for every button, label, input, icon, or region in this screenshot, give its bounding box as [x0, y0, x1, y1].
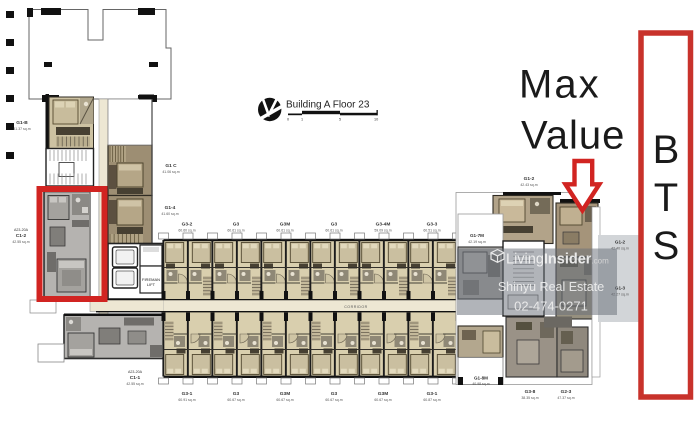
svg-text:G1 C: G1 C	[165, 163, 177, 169]
svg-text:G3M: G3M	[280, 391, 290, 397]
svg-text:41.06 sq.m: 41.06 sq.m	[162, 170, 179, 174]
svg-text:N: N	[267, 113, 270, 118]
svg-text:42.55 sq.m: 42.55 sq.m	[126, 382, 143, 386]
svg-text:60.87 sq.m: 60.87 sq.m	[423, 398, 440, 402]
svg-text:C1-1: C1-1	[130, 375, 141, 381]
svg-text:60.67 sq.m: 60.67 sq.m	[227, 398, 244, 402]
svg-text:10: 10	[374, 118, 378, 122]
svg-text:42.19 sq.m: 42.19 sq.m	[468, 240, 486, 244]
svg-text:G3-1: G3-1	[182, 391, 193, 397]
svg-text:A23-20A: A23-20A	[128, 370, 143, 374]
svg-text:47.37 sq.m: 47.37 sq.m	[557, 396, 574, 400]
svg-text:G3M: G3M	[280, 222, 290, 228]
svg-text:Max: Max	[519, 63, 601, 107]
svg-text:C1-2: C1-2	[16, 233, 27, 239]
svg-text:60.51 sq.m: 60.51 sq.m	[423, 229, 440, 233]
svg-text:G1-7M: G1-7M	[470, 233, 484, 238]
svg-text:60.61 sq.m: 60.61 sq.m	[325, 229, 342, 233]
svg-text:60.67 sq.m: 60.67 sq.m	[276, 398, 293, 402]
svg-text:G3M: G3M	[378, 391, 388, 397]
svg-text:G1-8M: G1-8M	[474, 376, 488, 381]
svg-text:Building A Floor 23: Building A Floor 23	[286, 100, 370, 111]
svg-text:60.91 sq.m: 60.91 sq.m	[178, 398, 195, 402]
svg-text:38.35 sq.m: 38.35 sq.m	[521, 396, 538, 400]
svg-text:G1-2: G1-2	[524, 176, 535, 182]
svg-text:60.61 sq.m: 60.61 sq.m	[227, 229, 244, 233]
svg-text:A23-20A: A23-20A	[14, 228, 29, 232]
svg-text:60.60 sq.m: 60.60 sq.m	[178, 229, 195, 233]
svg-text:40.98 sq.m: 40.98 sq.m	[472, 382, 489, 386]
svg-text:41.37 sq.m: 41.37 sq.m	[13, 127, 30, 131]
svg-text:T: T	[654, 176, 678, 220]
svg-text:59.09 sq.m: 59.09 sq.m	[374, 229, 391, 233]
svg-text:60.67 sq.m: 60.67 sq.m	[374, 398, 391, 402]
svg-text:G3-3: G3-3	[427, 222, 438, 228]
svg-text:1: 1	[301, 118, 303, 122]
svg-text:0: 0	[287, 118, 289, 122]
svg-text:G1-4: G1-4	[165, 205, 176, 211]
svg-text:42.43 sq.m: 42.43 sq.m	[520, 183, 537, 187]
svg-text:G3: G3	[331, 391, 338, 397]
svg-text:G3-1: G3-1	[427, 391, 438, 397]
svg-text:B: B	[653, 128, 680, 172]
svg-text:G2-3: G2-3	[561, 389, 572, 395]
svg-text:G3: G3	[233, 391, 240, 397]
svg-text:60.61 sq.m: 60.61 sq.m	[276, 229, 293, 233]
svg-text:G3: G3	[331, 222, 338, 228]
svg-text:60.67 sq.m: 60.67 sq.m	[325, 398, 342, 402]
svg-text:S: S	[653, 224, 680, 268]
svg-text:G1-B: G1-B	[16, 120, 28, 126]
svg-text:CORRIDOR: CORRIDOR	[344, 305, 368, 309]
svg-text:42.55 sq.m: 42.55 sq.m	[12, 240, 29, 244]
svg-text:02-474-0271: 02-474-0271	[514, 299, 588, 314]
svg-text:G1-2: G1-2	[615, 240, 626, 245]
svg-text:G3: G3	[233, 222, 240, 228]
svg-text:Value: Value	[521, 114, 625, 158]
svg-text:G3-2: G3-2	[182, 222, 193, 228]
svg-text:41.60 sq.m: 41.60 sq.m	[161, 212, 178, 216]
svg-text:G3-4M: G3-4M	[376, 222, 391, 228]
svg-text:G3-8: G3-8	[525, 389, 536, 395]
svg-text:5: 5	[339, 118, 341, 122]
svg-text:Shinyu Real Estate: Shinyu Real Estate	[498, 280, 604, 294]
svg-text:LIFT: LIFT	[147, 282, 156, 287]
